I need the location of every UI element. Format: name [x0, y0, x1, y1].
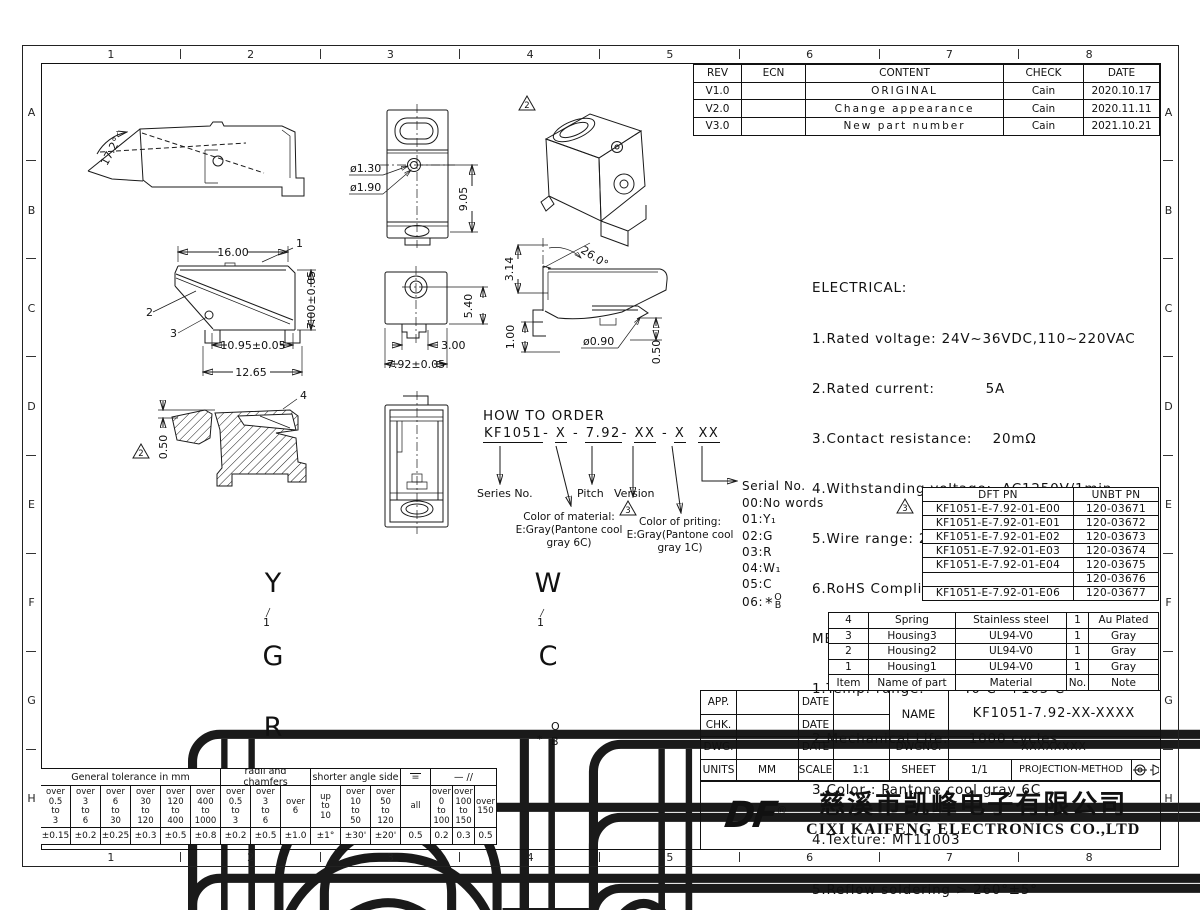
tolerance-value: ±1.0	[281, 828, 311, 845]
ruler-col: 4	[460, 848, 600, 866]
ruler-label: G	[27, 694, 36, 707]
ruler-col: 7	[880, 45, 1020, 63]
rev-cell: 2020.10.17	[1084, 83, 1160, 101]
rev-cell: V2.0	[694, 100, 742, 118]
ruler-row: F	[1159, 554, 1178, 652]
dwgno-value: XXXXXXXX	[948, 736, 1161, 760]
series-no-label: Series No.	[477, 487, 533, 500]
ruler-label: 5	[666, 48, 673, 61]
ruler-label: H	[1164, 792, 1172, 805]
tolerance-range: all	[401, 786, 431, 828]
ruler-row: H	[1159, 750, 1178, 848]
scale-value: 1:1	[833, 759, 890, 783]
ruler-row: F	[22, 554, 41, 652]
order-code-version: XX	[634, 426, 657, 443]
tolerance-range: over 120 to 400	[161, 786, 191, 828]
label-line: E:Gray(Pantone cool	[511, 524, 627, 537]
ruler-col: 3	[321, 45, 461, 63]
logo-text: DF	[722, 795, 778, 836]
ruler-col: 5	[600, 45, 740, 63]
tolerance-value: ±1°	[311, 828, 341, 845]
pn-cell: KF1051-E-7.92-01-E04	[923, 558, 1074, 572]
tolerance-value: ±0.8	[191, 828, 221, 845]
ruler-row: B	[22, 161, 41, 259]
bom-cell: 2	[829, 644, 869, 660]
rev-cell: V1.0	[694, 83, 742, 101]
bom-cell: Housing1	[869, 660, 956, 676]
spec-line: 3.Contact resistance: 20mΩ	[812, 431, 1138, 448]
tolerance-header-parallel: — //	[431, 769, 497, 786]
rev-header: CHECK	[1004, 65, 1084, 83]
pitch-label: Pitch	[577, 487, 604, 500]
pn-cell: KF1051-E-7.92-01-E01	[923, 516, 1074, 530]
pn-cell: KF1051-E-7.92-01-E02	[923, 530, 1074, 544]
ruler-label: 2	[247, 851, 254, 864]
ruler-row: A	[22, 63, 41, 161]
rev-header: DATE	[1084, 65, 1160, 83]
tolerance-range: over 0.5 to 3	[41, 786, 71, 828]
ruler-col: 3	[321, 848, 461, 866]
serial-option: 04:W₁	[742, 560, 824, 576]
ruler-label: A	[28, 106, 36, 119]
drawn-value	[736, 736, 799, 760]
tolerance-header-angle: shorter angle side	[311, 769, 401, 786]
date-label: DATE	[798, 714, 834, 738]
bom-cell: Housing2	[869, 644, 956, 660]
company-name-en: CIXI KAIFENG ELECTRONICS CO.,LTD	[786, 821, 1160, 839]
bom-header: Item	[829, 675, 869, 691]
drawing-sheet: 17.2° ø1.30 ø1.90 9.05	[0, 0, 1200, 910]
ruler-label: D	[1164, 400, 1172, 413]
date-value	[833, 736, 890, 760]
checked-value	[736, 714, 799, 738]
bom-cell: 1	[1067, 644, 1089, 660]
date-value	[833, 691, 890, 715]
company-name-cn: 慈溪市凯峰电子有限公司	[786, 791, 1160, 821]
rev-cell: Cain	[1004, 83, 1084, 101]
tolerance-range: over 0.5 to 3	[221, 786, 251, 828]
tolerance-range: over 30 to 120	[131, 786, 161, 828]
bom-header: Name of part	[869, 675, 956, 691]
tolerance-value: 0.5	[475, 828, 497, 845]
bom-cell: 4	[829, 613, 869, 629]
tolerance-range: over 150	[475, 786, 497, 828]
rev-header: ECN	[742, 65, 806, 83]
bom-header: Note	[1089, 675, 1159, 691]
tolerance-header-radii: radii and chamfers	[221, 769, 311, 786]
ruler-label: 1	[107, 851, 114, 864]
ruler-label: 2	[247, 48, 254, 61]
bom-cell: Housing3	[869, 629, 956, 645]
rev-cell	[742, 100, 806, 118]
ruler-row: C	[1159, 259, 1178, 357]
ruler-label: C	[28, 302, 36, 315]
spec-line: 1.Rated voltage: 24V~36VDC,110~220VAC	[812, 331, 1138, 348]
star-symbol: *	[765, 595, 773, 611]
drawn-label: DWG.	[701, 736, 737, 760]
ruler-label: F	[28, 596, 34, 609]
rev-cell: Change appearance	[806, 100, 1004, 118]
bom-cell: Gray	[1089, 644, 1159, 660]
pn-cell: KF1051-E-7.92-01-E00	[923, 502, 1074, 516]
ruler-row: B	[1159, 161, 1178, 259]
bom-cell: UL94-V0	[956, 644, 1067, 660]
spec-line: 5.Reflow soldering > 260°±5°	[812, 882, 1138, 899]
units-value: MM	[736, 759, 799, 783]
ruler-label: H	[27, 792, 35, 805]
bom-cell: Stainless steel	[956, 613, 1067, 629]
rev-cell: V3.0	[694, 118, 742, 136]
tolerance-value: ±0.25	[101, 828, 131, 845]
serial-option: 03:R	[742, 544, 824, 560]
label-line: gray 1C)	[626, 542, 734, 555]
ruler-right: A B C D E F G H	[1159, 63, 1178, 848]
first-angle-projection-icon	[1133, 763, 1159, 777]
spec-line: ELECTRICAL:	[812, 280, 1138, 297]
ruler-row: G	[22, 652, 41, 750]
ruler-label: C	[1165, 302, 1173, 315]
tolerance-range: up to 10	[311, 786, 341, 828]
tolerance-value: ±0.15	[41, 828, 71, 845]
serial-no-list: Serial No. 00:No words 01:Y₁ 02:G 03:R 0…	[742, 478, 824, 612]
ruler-col: 2	[181, 848, 321, 866]
bom-cell: 1	[1067, 629, 1089, 645]
ruler-row: H	[22, 750, 41, 848]
ruler-col: 1	[41, 45, 181, 63]
ruler-label: 4	[527, 48, 534, 61]
label-line: Color of priting:	[626, 516, 734, 529]
rev-header: REV	[694, 65, 742, 83]
ruler-top: 1 2 3 4 5 6 7 8	[41, 45, 1159, 63]
rev-cell	[742, 83, 806, 101]
name-label: NAME	[889, 691, 949, 737]
pn-cell	[923, 573, 1074, 587]
tolerance-value: ±30'	[341, 828, 371, 845]
ruler-label: B	[1165, 204, 1173, 217]
ruler-label: 7	[946, 48, 953, 61]
pn-cell: KF1051-E-7.92-01-E06	[923, 587, 1074, 601]
serial-06-prefix: 06:	[742, 594, 763, 610]
date-label: DATE	[798, 736, 834, 760]
title-block: APP. DATE CHK. DATE DWG. DATE UNITS MM S…	[700, 690, 1160, 781]
ruler-col: 2	[181, 45, 321, 63]
rev-cell: New part number	[806, 118, 1004, 136]
ruler-label: F	[1165, 596, 1171, 609]
tolerance-value: 0.5	[401, 828, 431, 845]
pn-header: DFT PN	[923, 488, 1074, 502]
approved-label: APP.	[701, 691, 737, 715]
order-code-sep: -	[567, 426, 584, 441]
tolerance-value: 0.2	[431, 828, 453, 845]
serial-option: 05:C	[742, 576, 824, 592]
rev-cell: 2020.11.11	[1084, 100, 1160, 118]
date-value	[833, 714, 890, 738]
sheet-label: SHEET	[889, 759, 949, 783]
serial-option: 01:Y₁	[742, 511, 824, 527]
pn-cell: 120-03675	[1074, 558, 1159, 572]
pn-cell: 120-03673	[1074, 530, 1159, 544]
pn-cell: 120-03676	[1074, 573, 1159, 587]
tolerance-value: ±0.5	[161, 828, 191, 845]
dwgno-label: DWGNO.	[889, 736, 949, 760]
ruler-left: A B C D E F G H	[22, 63, 41, 848]
ruler-label: B	[28, 204, 36, 217]
tolerance-value: ±0.5	[251, 828, 281, 845]
rev-header: CONTENT	[806, 65, 1004, 83]
ruler-label: E	[28, 498, 35, 511]
serial-option: 02:G	[742, 528, 824, 544]
tolerance-value: ±0.2	[71, 828, 101, 845]
bom-cell: Gray	[1089, 629, 1159, 645]
order-code-pitch: 7.92	[585, 426, 622, 443]
ruler-col: 8	[1019, 45, 1159, 63]
bom-table: 4 Spring Stainless steel 1 Au Plated 3 H…	[828, 612, 1159, 691]
color-of-material-label: Color of material: E:Gray(Pantone cool g…	[511, 511, 627, 550]
serial-option-06: 06: * O B	[742, 592, 824, 611]
ruler-label: 4	[527, 851, 534, 864]
revision-table: REV ECN CONTENT CHECK DATE V1.0 ORIGINAL…	[693, 64, 1160, 136]
registered-mark: ®	[775, 804, 788, 817]
ruler-label: E	[1165, 498, 1172, 511]
bom-cell: UL94-V0	[956, 660, 1067, 676]
ruler-row: D	[22, 357, 41, 455]
ruler-label: 3	[387, 48, 394, 61]
order-code-material: X	[555, 426, 567, 443]
serial-06-stack: O B	[774, 594, 782, 611]
ruler-row: E	[1159, 456, 1178, 554]
symmetry-tolerance-icon: =	[401, 769, 431, 786]
label-line: Color of material:	[511, 511, 627, 524]
pn-cell: KF1051-E-7.92-01-E03	[923, 544, 1074, 558]
projection-label: PROJECTION-METHOD	[1011, 759, 1132, 783]
ruler-row: G	[1159, 652, 1178, 750]
approved-value	[736, 691, 799, 715]
date-label: DATE	[798, 691, 834, 715]
color-of-printing-label: Color of priting: E:Gray(Pantone cool gr…	[626, 516, 734, 555]
units-label: UNITS	[701, 759, 737, 783]
bom-cell: 1	[829, 660, 869, 676]
bom-cell: 1	[1067, 660, 1089, 676]
checked-label: CHK.	[701, 714, 737, 738]
order-code-sep: -	[656, 426, 673, 441]
pn-cell: 120-03674	[1074, 544, 1159, 558]
company-logo: DF®	[722, 795, 789, 836]
ruler-row: E	[22, 456, 41, 554]
tolerance-range: over 6	[281, 786, 311, 828]
pn-header: UNBT PN	[1074, 488, 1159, 502]
order-code-serial: XX	[698, 426, 721, 443]
sheet-value: 1/1	[948, 759, 1012, 783]
tolerance-value: ±0.2	[221, 828, 251, 845]
tolerance-value: ±20'	[371, 828, 401, 845]
tolerance-value: 0.3	[453, 828, 475, 845]
tolerance-range: over 100 to 150	[453, 786, 475, 828]
ruler-row: D	[1159, 357, 1178, 455]
rev-cell: ORIGINAL	[806, 83, 1004, 101]
ruler-label: 6	[806, 48, 813, 61]
spec-line: 2.Rated current: 5A	[812, 381, 1138, 398]
bom-cell: Au Plated	[1089, 613, 1159, 629]
tolerance-range: over 50 to 120	[371, 786, 401, 828]
tolerance-range: over 3 to 6	[251, 786, 281, 828]
ruler-row: A	[1159, 63, 1178, 161]
label-line: E:Gray(Pantone cool	[626, 529, 734, 542]
pn-cell: 120-03672	[1074, 516, 1159, 530]
ruler-label: G	[1164, 694, 1173, 707]
order-code-sep: -	[543, 426, 555, 441]
tolerance-range: over 400 to 1000	[191, 786, 221, 828]
tolerance-range: over 6 to 30	[101, 786, 131, 828]
company-names: 慈溪市凯峰电子有限公司 CIXI KAIFENG ELECTRONICS CO.…	[786, 791, 1160, 839]
ruler-label: 3	[387, 851, 394, 864]
part-name-value: KF1051-7.92-XX-XXXX	[948, 691, 1161, 737]
order-code: KF1051- X - 7.92- XX - X XX	[483, 426, 720, 441]
serial-06-bottom: B	[774, 602, 782, 611]
rev-cell: Cain	[1004, 100, 1084, 118]
order-code-printing: X	[674, 426, 686, 443]
ruler-label: 8	[1086, 48, 1093, 61]
tolerance-range: over 0 to 100	[431, 786, 453, 828]
company-block: DF® 慈溪市凯峰电子有限公司 CIXI KAIFENG ELECTRONICS…	[700, 780, 1160, 849]
rev-cell	[742, 118, 806, 136]
serial-no-title: Serial No.	[742, 478, 824, 494]
tolerance-header-general: General tolerance in mm	[41, 769, 221, 786]
ruler-label: A	[1165, 106, 1173, 119]
part-number-table: DFT PN UNBT PN KF1051-E-7.92-01-E00 120-…	[922, 487, 1159, 601]
bom-cell: 3	[829, 629, 869, 645]
rev-cell: 2021.10.21	[1084, 118, 1160, 136]
tolerance-range: over 10 to 50	[341, 786, 371, 828]
tolerance-range: over 3 to 6	[71, 786, 101, 828]
ruler-col: 1	[41, 848, 181, 866]
bom-cell: Gray	[1089, 660, 1159, 676]
order-code-sep: -	[622, 426, 634, 441]
ruler-label: D	[27, 400, 35, 413]
pn-cell: 120-03677	[1074, 587, 1159, 601]
rev-cell: Cain	[1004, 118, 1084, 136]
serial-option: 00:No words	[742, 495, 824, 511]
ruler-col: 4	[460, 45, 600, 63]
ruler-col: 5	[600, 848, 740, 866]
ruler-row: C	[22, 259, 41, 357]
ruler-col: 6	[740, 45, 880, 63]
bom-cell: UL94-V0	[956, 629, 1067, 645]
tolerance-table: General tolerance in mm radii and chamfe…	[41, 768, 497, 845]
bom-cell: 1	[1067, 613, 1089, 629]
bom-cell: Spring	[869, 613, 956, 629]
tolerance-value: ±0.3	[131, 828, 161, 845]
scale-label: SCALE	[798, 759, 834, 783]
order-code-sep	[686, 426, 697, 441]
ruler-label: 5	[666, 851, 673, 864]
bom-header: Material	[956, 675, 1067, 691]
version-label: Version	[614, 487, 654, 500]
order-code-series: KF1051	[483, 426, 543, 443]
bom-header: No.	[1067, 675, 1089, 691]
order-title: HOW TO ORDER	[483, 408, 605, 424]
projection-symbol-cell	[1131, 759, 1161, 783]
pn-cell: 120-03671	[1074, 502, 1159, 516]
label-line: gray 6C)	[511, 537, 627, 550]
ruler-label: 1	[107, 48, 114, 61]
